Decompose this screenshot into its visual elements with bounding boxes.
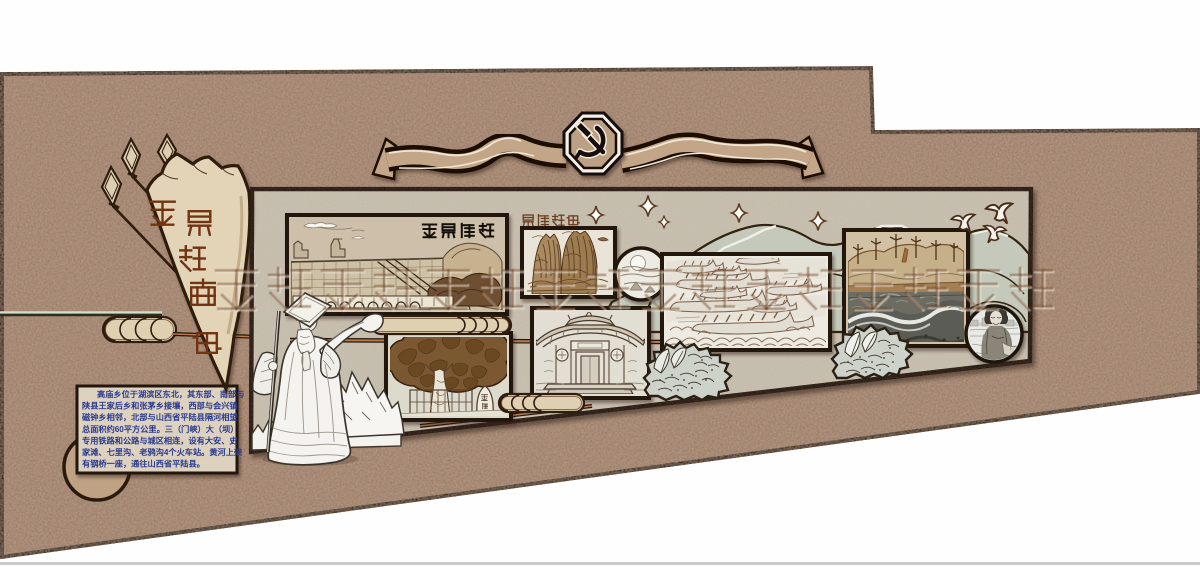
svg-text:有钢桥一座，通往山西省平陆县。: 有钢桥一座，通往山西省平陆县。	[82, 459, 205, 469]
svg-text:专用铁路和公路与城区相连，设有大安、史: 专用铁路和公路与城区相连，设有大安、史	[82, 435, 238, 445]
svg-text:高庙乡位于湖滨区东北，其东部、南部与: 高庙乡位于湖滨区东北，其东部、南部与	[97, 389, 244, 399]
svg-text:家滩、七里沟、老鸦沟4个火车站。黄河上架: 家滩、七里沟、老鸦沟4个火车站。黄河上架	[82, 447, 243, 457]
svg-text:磁钟乡相邻，北部与山西省平陆县隔河相望: 磁钟乡相邻，北部与山西省平陆县隔河相望	[82, 412, 238, 422]
svg-text:总面积约60平方公里。三（门峡）大（坝）: 总面积约60平方公里。三（门峡）大（坝）	[82, 424, 238, 434]
svg-text:陕县王家后乡和张茅乡接壤，西部与会兴镇: 陕县王家后乡和张茅乡接壤，西部与会兴镇	[82, 401, 238, 411]
